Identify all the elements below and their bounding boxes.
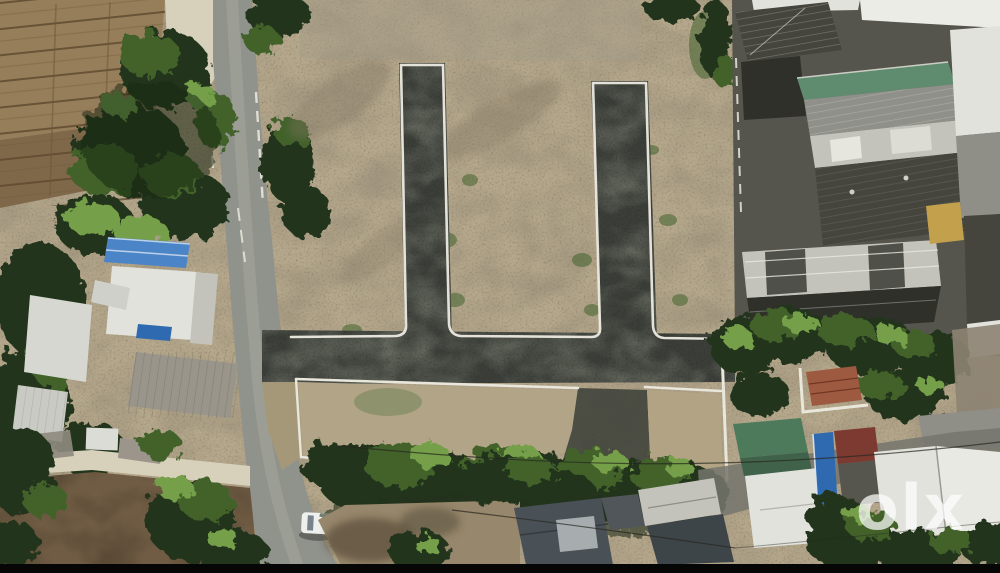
dark-roof-east [964, 214, 1000, 324]
dark-panel [765, 249, 807, 295]
banana-plants [66, 200, 118, 236]
roof-vent [850, 190, 855, 195]
tree-canopy [244, 26, 280, 54]
letterbox-bar [0, 564, 1000, 573]
light-roof-patch [556, 516, 598, 552]
weed-patch [584, 304, 600, 316]
weed-patch [659, 214, 677, 226]
tree-canopy [856, 371, 904, 399]
gray-roof [956, 132, 1000, 218]
weed-patch [462, 174, 478, 186]
tree-canopy [916, 377, 944, 393]
tree-canopy [414, 537, 442, 553]
blue-tarp [136, 324, 172, 341]
plot-upper-gray-tone [300, 0, 640, 62]
aerial-photo: olx [0, 0, 1000, 573]
dark-panel [868, 243, 905, 290]
tree-canopy [157, 476, 193, 500]
weed-patch [572, 253, 592, 267]
yellow-shed [926, 202, 964, 244]
red-tile-roof-house [806, 366, 862, 406]
right-buildings [710, 0, 1000, 432]
tree-canopy [206, 528, 238, 548]
tree-canopy [300, 443, 360, 487]
olx-watermark: olx [856, 471, 966, 544]
moss-patch [354, 388, 422, 416]
car-windshield [307, 515, 314, 530]
tree-canopy [874, 326, 906, 344]
roof-vent [904, 176, 909, 181]
bush [138, 430, 182, 458]
tree-canopy [817, 314, 873, 346]
white-flat-roof [24, 295, 92, 382]
tree-canopy [666, 459, 694, 477]
white-big-roof [950, 26, 1000, 136]
weathered-roof-corrugation [128, 352, 238, 418]
tree-canopy [120, 33, 180, 77]
bush [23, 482, 67, 518]
tree-canopy [592, 452, 628, 472]
tree-canopy [782, 312, 818, 332]
white-roof-patch [830, 136, 862, 162]
maroon-roof [834, 427, 879, 464]
weed-patch [672, 294, 688, 306]
tree-canopy [722, 328, 754, 348]
green-roof-bottom [733, 418, 808, 458]
white-roof-patch [890, 126, 932, 154]
tree-canopy [282, 186, 330, 238]
darker-roof-block [741, 56, 806, 120]
tree-canopy [730, 373, 790, 417]
white-shed [86, 427, 119, 450]
tree-shadow [80, 82, 220, 198]
